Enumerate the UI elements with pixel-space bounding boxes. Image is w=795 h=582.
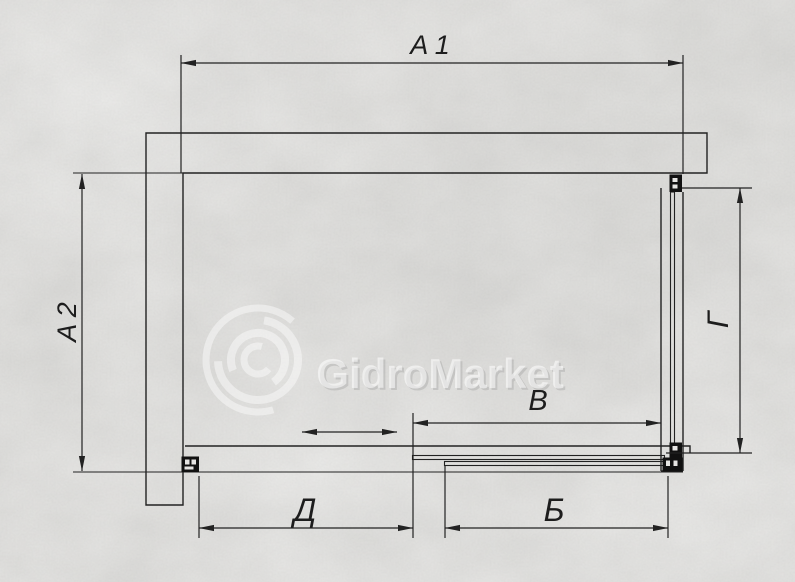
g-label: Г xyxy=(702,309,735,328)
d-label: Д xyxy=(291,492,317,528)
watermark-swirl-logo xyxy=(198,300,318,420)
dimension-a2: A 2 xyxy=(52,174,82,471)
side-glass-panel xyxy=(671,192,675,446)
bottom-right-corner-profile xyxy=(663,443,683,472)
a1-label: A 1 xyxy=(408,30,450,60)
dimension-g: Г xyxy=(666,188,752,453)
sliding-glass-panel-2 xyxy=(445,462,667,466)
watermark-text: GidroMarket xyxy=(316,350,563,397)
watermark: GidroMarket GidroMarket xyxy=(198,300,566,420)
technical-drawing-canvas: GidroMarket GidroMarket xyxy=(0,0,795,582)
a2-label: A 2 xyxy=(52,302,82,344)
dimension-b: Б xyxy=(445,466,668,538)
enclosure-structure xyxy=(73,173,690,472)
dimension-a1: A 1 xyxy=(181,30,683,174)
bottom-left-wall-profile xyxy=(182,457,200,473)
hardware-profiles xyxy=(182,175,683,473)
sliding-glass-panel-1 xyxy=(413,456,665,460)
v-label: В xyxy=(528,385,547,417)
b-label: Б xyxy=(544,492,565,528)
front-track-inner-line xyxy=(185,446,690,453)
shower-enclosure-plan: GidroMarket GidroMarket xyxy=(0,0,795,582)
dimension-d: Д xyxy=(199,476,413,538)
top-wall-profile xyxy=(670,175,683,193)
